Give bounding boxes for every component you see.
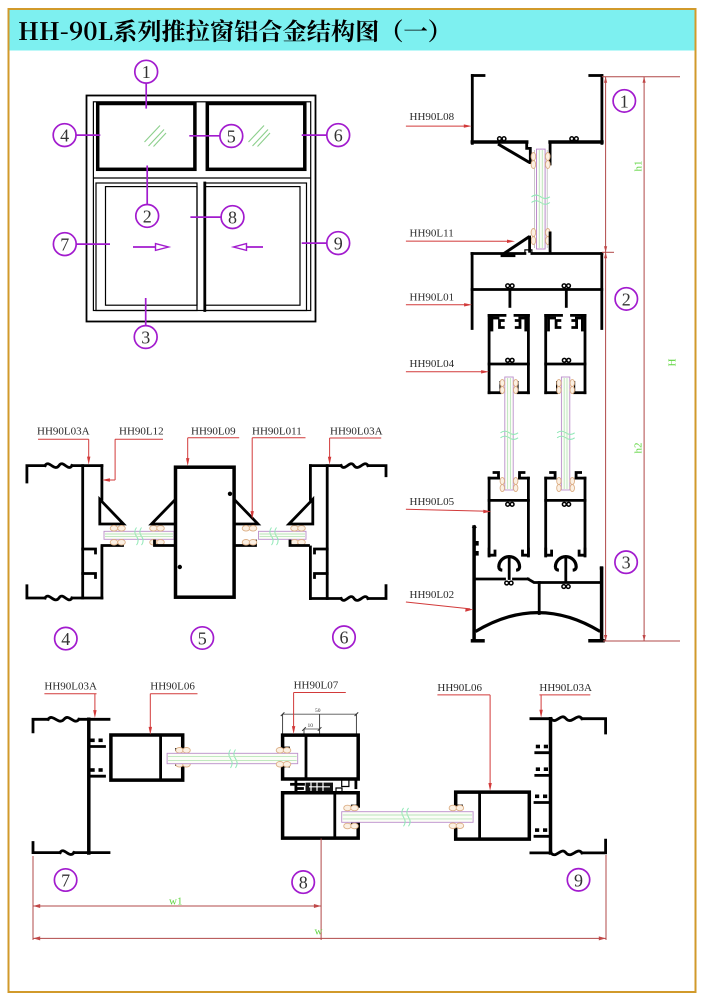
svg-text:4: 4	[60, 126, 69, 146]
svg-text:HH90L03A: HH90L03A	[330, 425, 383, 437]
svg-text:6: 6	[340, 628, 349, 648]
svg-text:3: 3	[141, 328, 150, 348]
svg-text:10: 10	[308, 723, 314, 729]
svg-text:w: w	[315, 926, 323, 938]
svg-text:2: 2	[622, 289, 631, 309]
svg-text:HH90L07: HH90L07	[294, 679, 339, 691]
svg-text:HH90L08: HH90L08	[410, 111, 455, 123]
svg-text:50: 50	[315, 708, 321, 714]
svg-text:HH90L01: HH90L01	[410, 292, 455, 304]
svg-text:HH90L06: HH90L06	[150, 681, 195, 693]
svg-text:8: 8	[299, 873, 308, 893]
svg-text:HH90L12: HH90L12	[119, 425, 164, 437]
svg-text:HH90L011: HH90L011	[252, 425, 302, 437]
svg-text:7: 7	[60, 235, 69, 255]
svg-text:HH90L02: HH90L02	[410, 589, 455, 601]
svg-text:8: 8	[228, 208, 237, 228]
svg-text:HH90L03A: HH90L03A	[37, 425, 90, 437]
svg-text:H: H	[667, 359, 679, 367]
svg-text:7: 7	[61, 871, 70, 891]
svg-text:6: 6	[334, 126, 343, 146]
svg-text:HH90L05: HH90L05	[410, 496, 455, 508]
svg-text:9: 9	[334, 234, 343, 254]
svg-text:2: 2	[143, 206, 152, 226]
svg-text:HH90L03A: HH90L03A	[539, 682, 592, 694]
svg-text:w1: w1	[169, 896, 182, 908]
svg-text:h1: h1	[633, 161, 645, 172]
svg-text:HH90L11: HH90L11	[410, 227, 454, 239]
svg-text:1: 1	[142, 62, 151, 82]
svg-text:3: 3	[622, 553, 631, 573]
svg-text:5: 5	[227, 127, 236, 147]
svg-text:HH90L04: HH90L04	[410, 358, 455, 370]
svg-text:h2: h2	[633, 443, 645, 454]
svg-text:HH90L06: HH90L06	[437, 682, 482, 694]
svg-text:HH90L03A: HH90L03A	[44, 681, 97, 693]
svg-text:9: 9	[574, 870, 583, 890]
svg-text:HH90L09: HH90L09	[191, 425, 236, 437]
svg-text:1: 1	[620, 91, 629, 111]
svg-text:4: 4	[61, 629, 70, 649]
svg-text:5: 5	[198, 629, 207, 649]
